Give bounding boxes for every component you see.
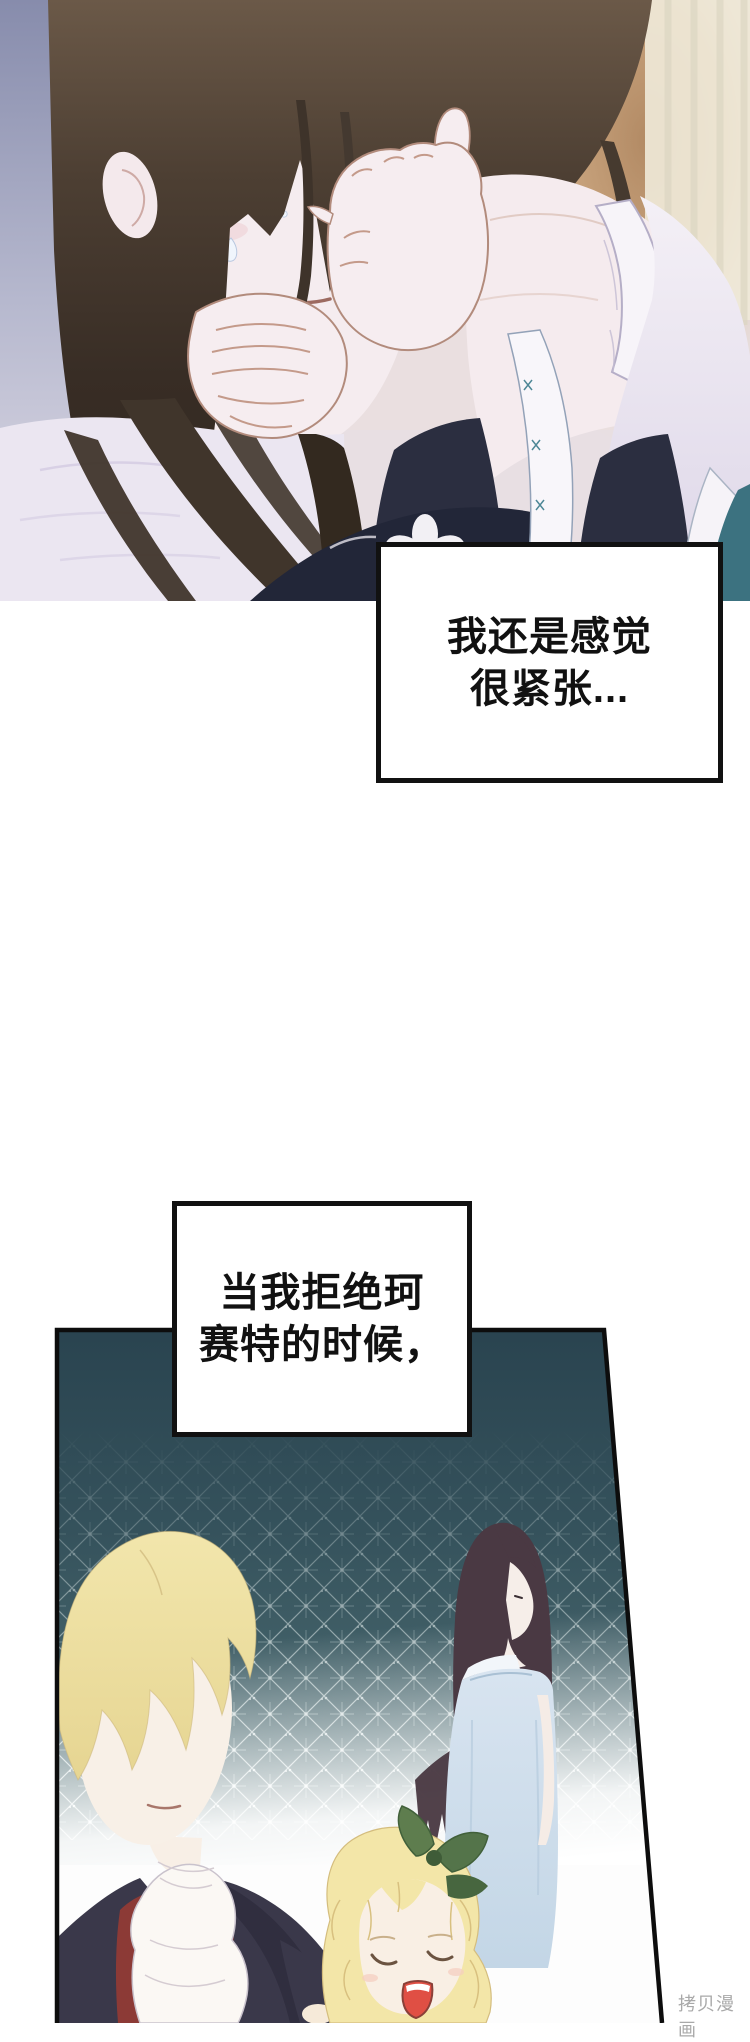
panel-crying-closeup [0,0,750,601]
speech-box-2-line-2: 赛特的时候， [199,1319,445,1371]
speech-box-1: 我还是感觉 很紧张... [376,542,723,783]
speech-box-1-line-1: 我还是感觉 [447,611,652,663]
watermark: 拷贝漫画 [678,1990,750,2042]
speech-box-2-line-1: 当我拒绝珂 [220,1267,425,1319]
speech-box-2: 当我拒绝珂 赛特的时候， [172,1201,472,1437]
speech-box-1-line-2: 很紧张... [470,663,629,715]
panel-1-art [0,0,750,601]
comic-page: { "page": { "width": 750, "height": 2023… [0,0,750,2023]
